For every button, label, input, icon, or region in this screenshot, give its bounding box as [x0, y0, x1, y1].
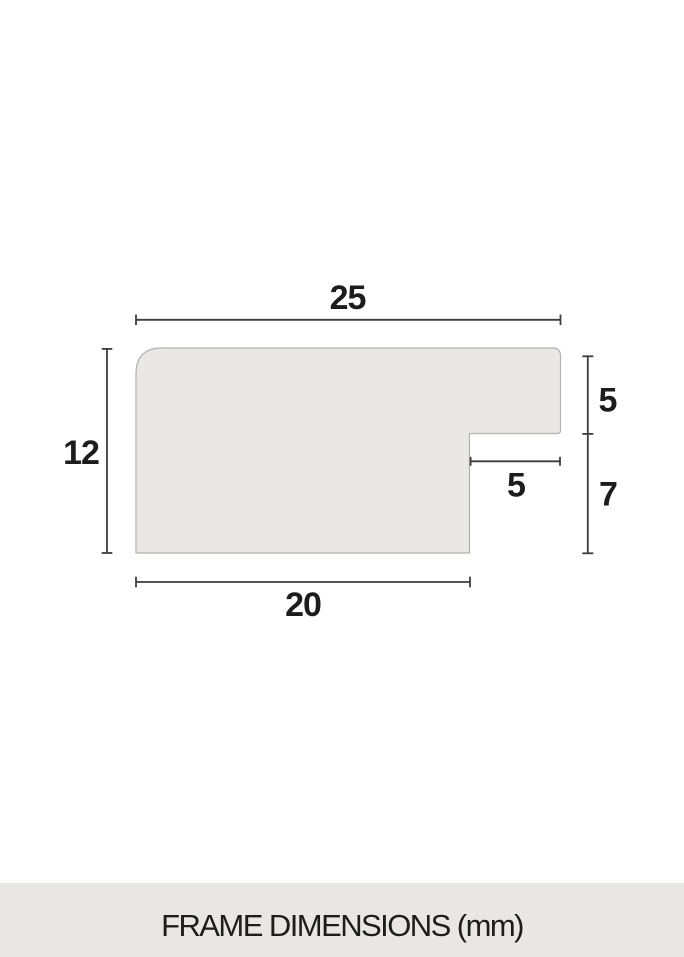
- svg-text:12: 12: [63, 434, 99, 472]
- svg-text:5: 5: [599, 382, 617, 420]
- svg-text:25: 25: [330, 279, 366, 317]
- svg-text:7: 7: [599, 476, 617, 514]
- svg-text:5: 5: [507, 467, 525, 505]
- svg-text:20: 20: [285, 586, 321, 624]
